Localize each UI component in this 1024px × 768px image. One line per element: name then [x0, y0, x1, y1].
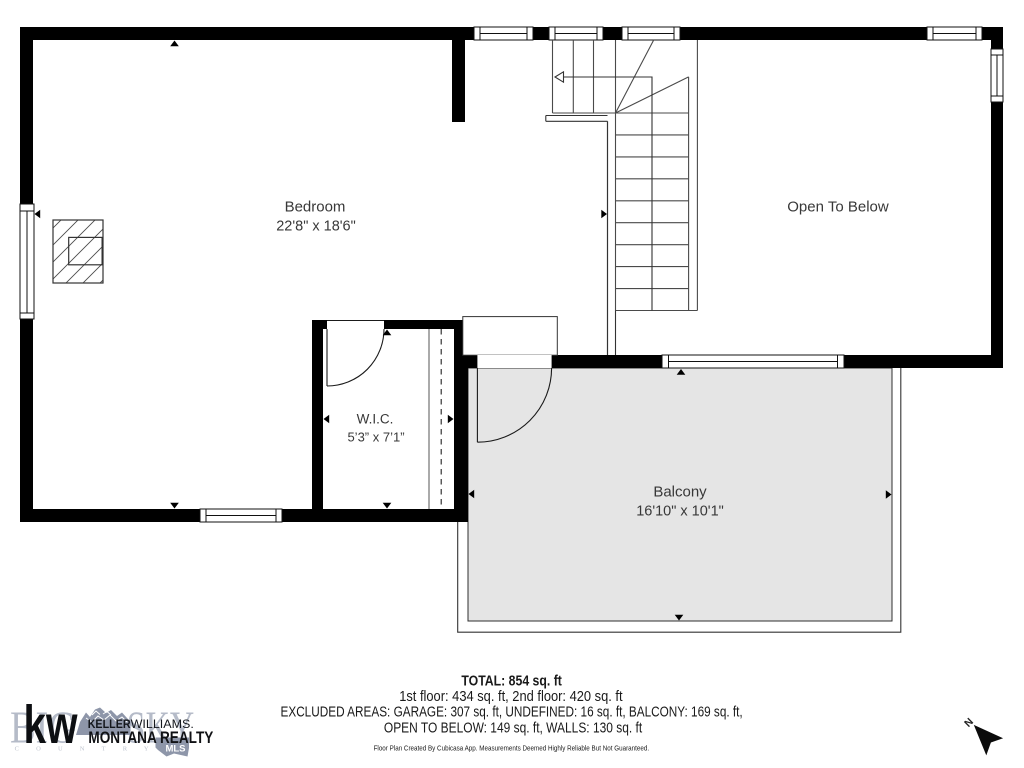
svg-text:22'8" x 18'6": 22'8" x 18'6" — [276, 219, 356, 235]
svg-text:kw: kw — [24, 695, 79, 755]
svg-text:Floor Plan Created By Cubicasa: Floor Plan Created By Cubicasa App. Meas… — [374, 743, 649, 752]
svg-text:OPEN TO BELOW: 149 sq. ft, WAL: OPEN TO BELOW: 149 sq. ft, WALLS: 130 sq… — [384, 720, 642, 736]
svg-text:EXCLUDED AREAS: GARAGE: 307 sq: EXCLUDED AREAS: GARAGE: 307 sq. ft, UNDE… — [281, 705, 743, 721]
svg-text:Open To Below: Open To Below — [787, 199, 889, 216]
svg-text:5’3” x 7’1”: 5’3” x 7’1” — [347, 430, 404, 445]
svg-text:1st floor: 434 sq. ft, 2nd flo: 1st floor: 434 sq. ft, 2nd floor: 420 sq… — [399, 689, 622, 705]
svg-text:TOTAL: 854 sq. ft: TOTAL: 854 sq. ft — [461, 674, 562, 690]
svg-text:Balcony: Balcony — [653, 484, 707, 501]
svg-text:W.I.C.: W.I.C. — [357, 412, 394, 427]
svg-text:Bedroom: Bedroom — [285, 199, 346, 216]
svg-text:16'10" x 10'1": 16'10" x 10'1" — [636, 504, 724, 520]
svg-text:MONTANA REALTY: MONTANA REALTY — [88, 729, 213, 747]
